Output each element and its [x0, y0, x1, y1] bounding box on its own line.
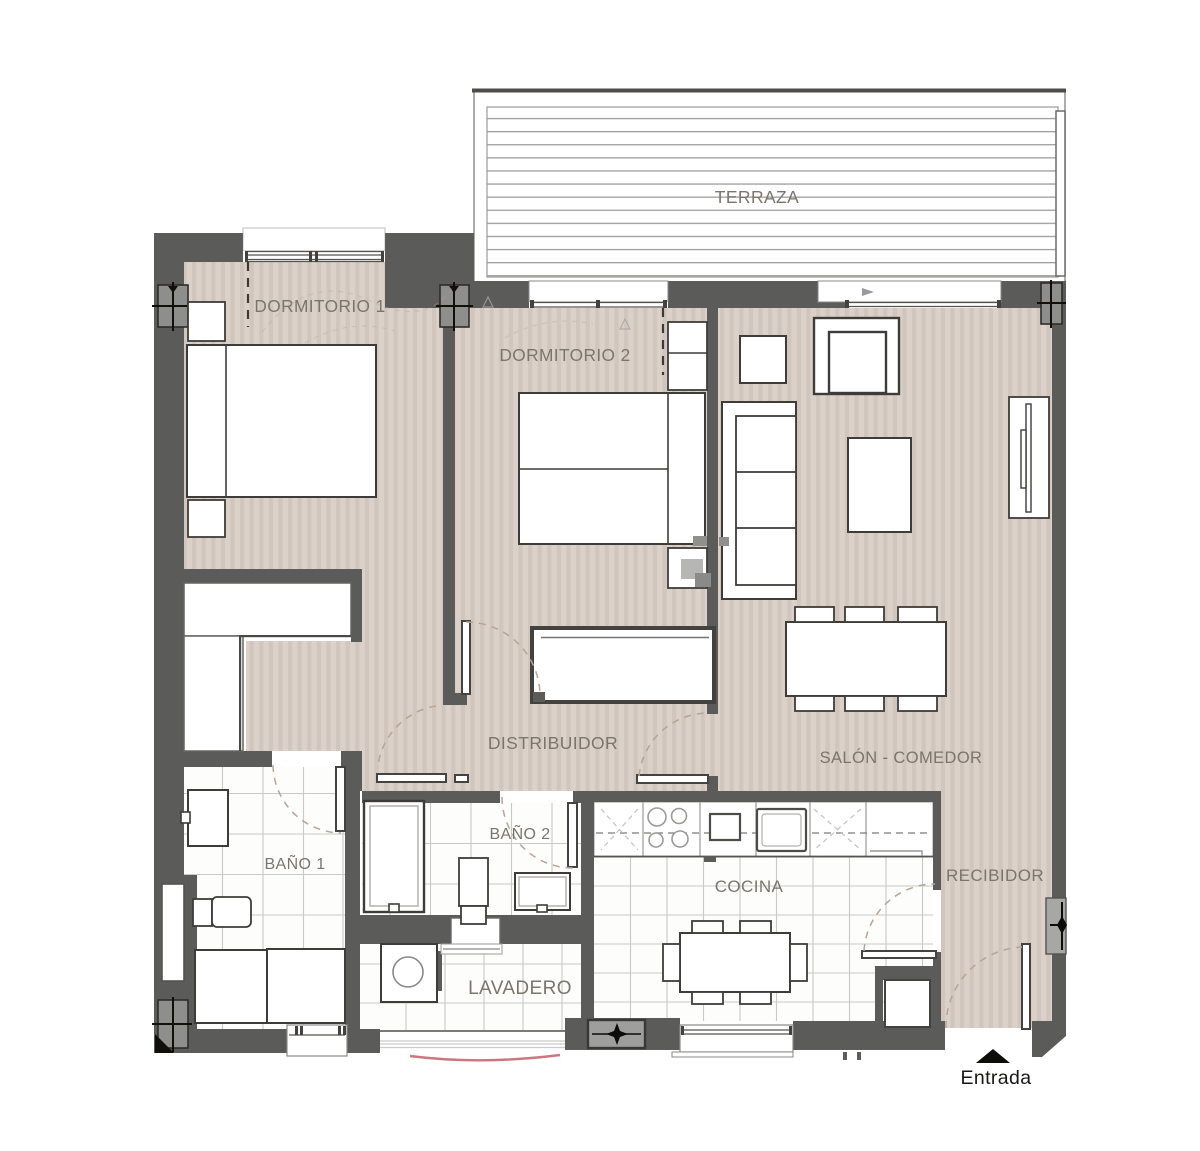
svg-text:SALÓN - COMEDOR: SALÓN - COMEDOR	[820, 748, 983, 767]
svg-text:DORMITORIO 1: DORMITORIO 1	[254, 296, 385, 316]
svg-text:TERRAZA: TERRAZA	[715, 187, 799, 207]
svg-text:BAÑO 2: BAÑO 2	[489, 823, 550, 843]
svg-text:DISTRIBUIDOR: DISTRIBUIDOR	[488, 733, 618, 753]
svg-text:DORMITORIO 2: DORMITORIO 2	[499, 345, 630, 365]
svg-text:RECIBIDOR: RECIBIDOR	[946, 866, 1044, 885]
svg-text:BAÑO 1: BAÑO 1	[264, 853, 325, 873]
svg-text:Entrada: Entrada	[960, 1067, 1031, 1089]
svg-text:LAVADERO: LAVADERO	[468, 978, 572, 999]
svg-text:COCINA: COCINA	[715, 877, 784, 896]
